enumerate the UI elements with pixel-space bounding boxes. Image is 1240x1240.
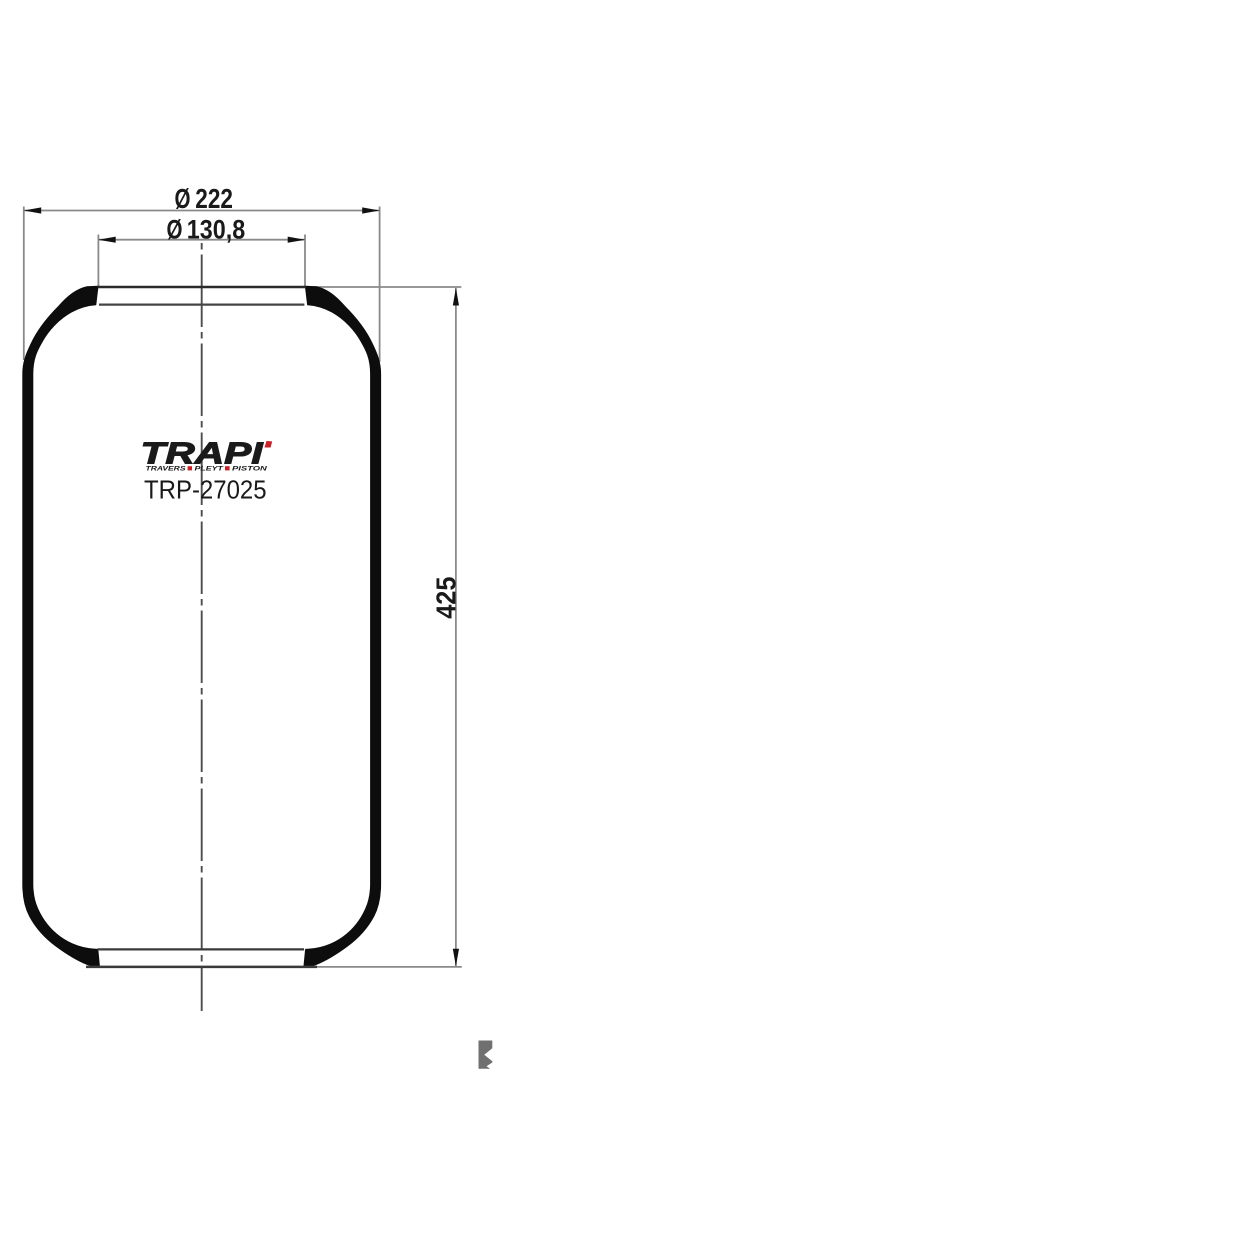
svg-text:130,8: 130,8	[187, 215, 245, 245]
svg-text:425: 425	[431, 577, 462, 619]
svg-text:Ø: Ø	[167, 215, 183, 245]
svg-text:PISTON: PISTON	[232, 465, 268, 472]
svg-text:222: 222	[195, 183, 233, 214]
svg-text:Ø: Ø	[175, 183, 191, 214]
svg-text:TRP-27025: TRP-27025	[144, 475, 267, 505]
svg-text:TRAVERS: TRAVERS	[146, 465, 187, 472]
svg-text:PLEYT: PLEYT	[195, 465, 225, 472]
